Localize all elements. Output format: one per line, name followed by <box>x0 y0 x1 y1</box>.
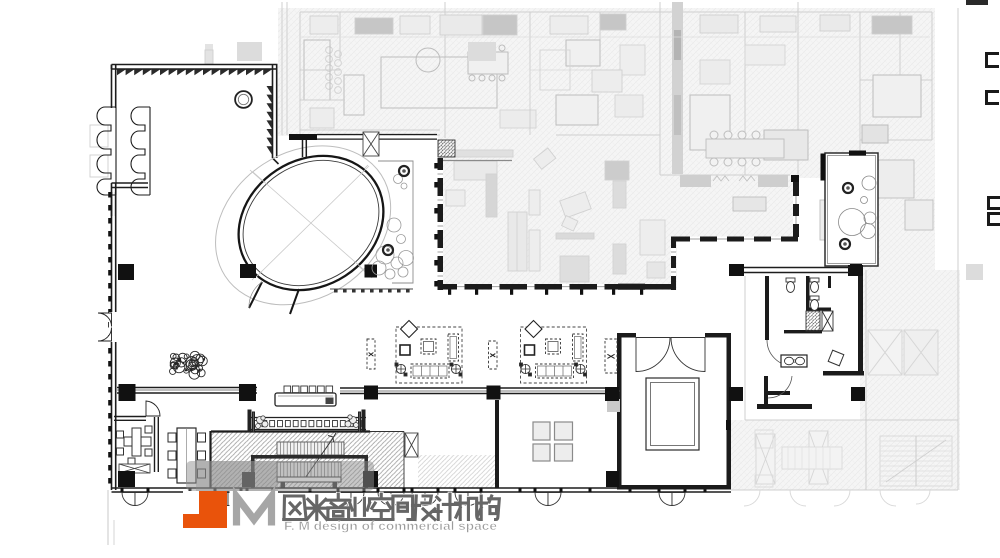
svg-text:F. M design of commercial spac: F. M design of commercial space <box>284 519 497 533</box>
